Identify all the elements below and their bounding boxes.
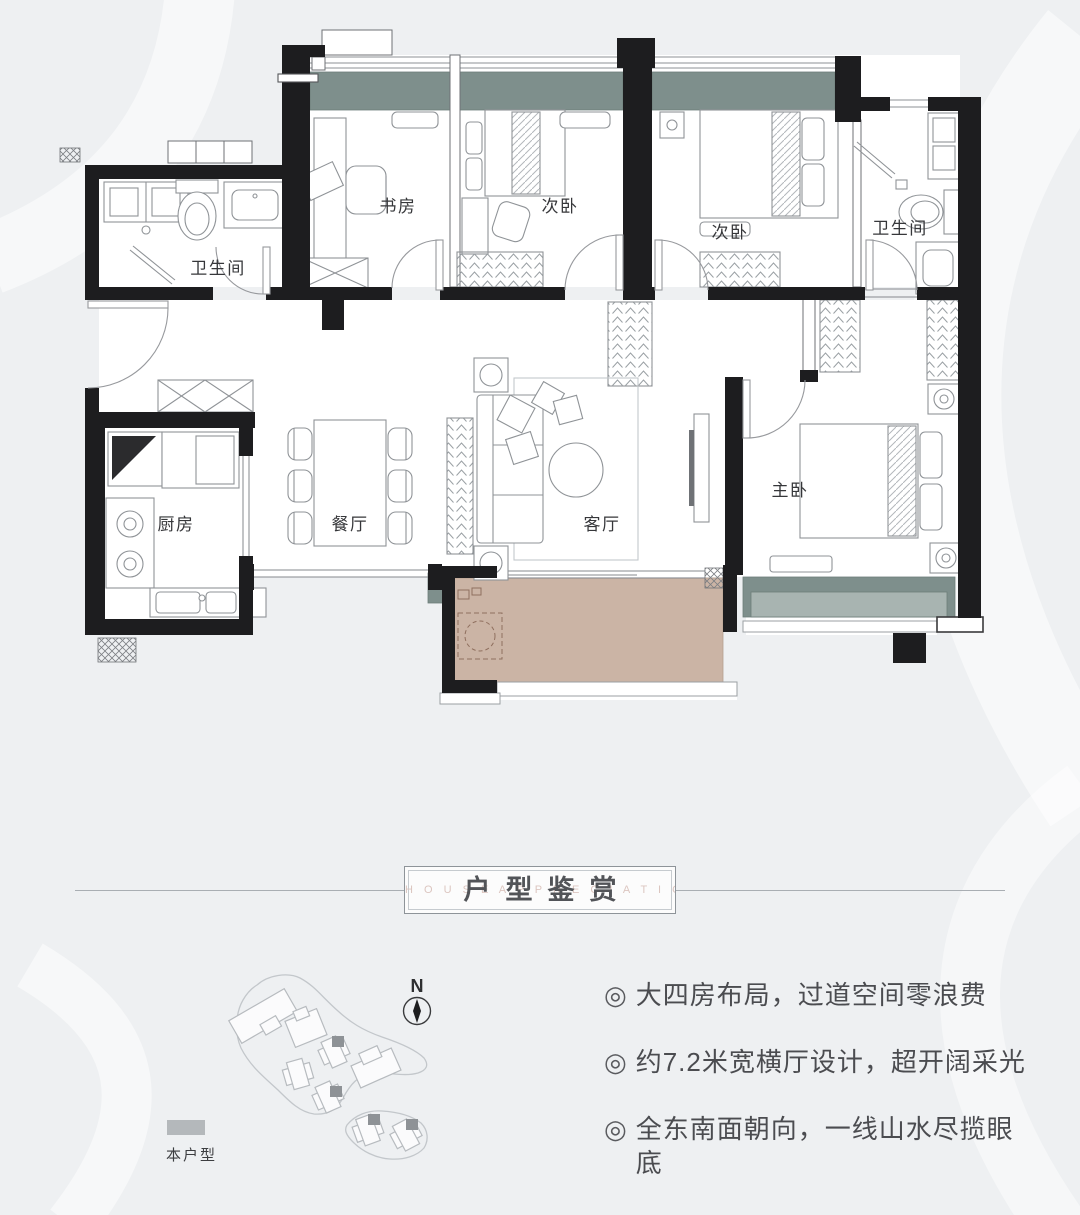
room-label-bedroom-2: 次卧 [542, 197, 579, 216]
section-title: 户型鉴赏 [405, 867, 675, 913]
floorplan-poster: 卫生间 书房 次卧 次卧 卫生间 厨房 餐厅 客厅 主卧 [0, 0, 1080, 1215]
site-legend: 本户型 [166, 1120, 217, 1164]
site-highlight-mark [332, 1036, 344, 1047]
feature-item: ◎ 约7.2米宽横厅设计，超开阔采光 [604, 1045, 1034, 1079]
room-label-bedroom-3: 次卧 [712, 223, 749, 242]
legend-swatch [167, 1120, 205, 1135]
feature-text: 大四房布局，过道空间零浪费 [636, 978, 987, 1012]
room-label-kitchen: 厨房 [158, 515, 195, 534]
section-title-band: H O U S E A P P R E C I A T I O N 户型鉴赏 [0, 866, 1080, 916]
bullet-icon: ◎ [604, 978, 628, 1012]
compass-north-label: N [411, 976, 424, 996]
site-highlight-mark [406, 1119, 418, 1130]
feature-list: ◎ 大四房布局，过道空间零浪费 ◎ 约7.2米宽横厅设计，超开阔采光 ◎ 全东南… [604, 978, 1034, 1213]
feature-item: ◎ 大四房布局，过道空间零浪费 [604, 978, 1034, 1012]
compass-icon: N [404, 976, 431, 1025]
room-label-study: 书房 [380, 197, 417, 216]
site-plan: N 本户型 [166, 975, 431, 1164]
site-building [229, 989, 300, 1048]
feature-text: 全东南面朝向，一线山水尽揽眼底 [636, 1112, 1034, 1180]
room-label-living: 客厅 [584, 515, 621, 534]
legend-label: 本户型 [166, 1147, 217, 1164]
balcony-column-hatch [705, 568, 723, 588]
site-highlight-mark [330, 1086, 342, 1097]
bullet-icon: ◎ [604, 1045, 628, 1079]
room-label-bathroom-2: 卫生间 [872, 219, 928, 238]
site-highlight-mark [368, 1114, 380, 1125]
room-label-dining: 餐厅 [332, 515, 369, 534]
feature-item: ◎ 全东南面朝向，一线山水尽揽眼底 [604, 1112, 1034, 1180]
room-label-master: 主卧 [772, 481, 809, 500]
bullet-icon: ◎ [604, 1112, 628, 1146]
section-title-box: H O U S E A P P R E C I A T I O N 户型鉴赏 [404, 866, 676, 914]
room-label-bathroom-1: 卫生间 [190, 259, 246, 278]
site-tower [281, 1057, 316, 1092]
feature-text: 约7.2米宽横厅设计，超开阔采光 [636, 1045, 1026, 1079]
